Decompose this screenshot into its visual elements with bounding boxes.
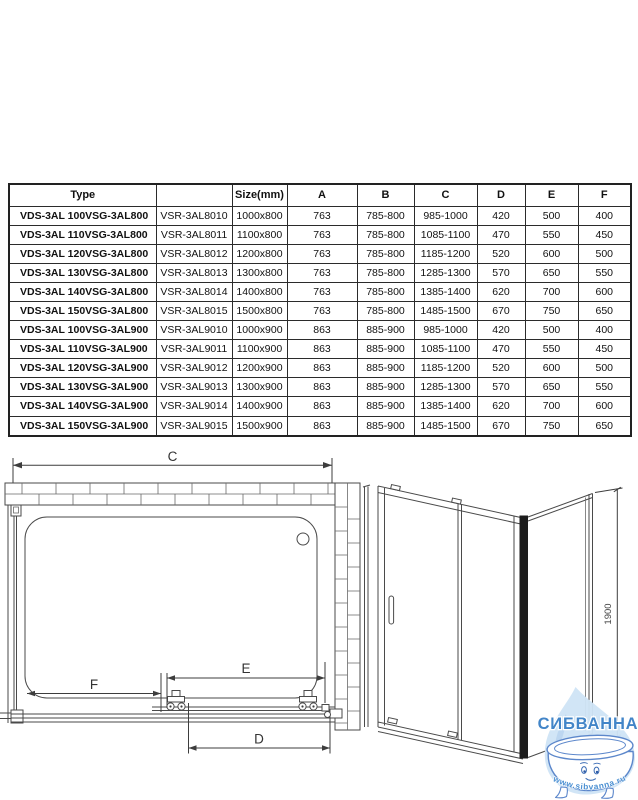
model-vsr: VSR-3AL8012: [156, 245, 232, 264]
watermark-brand-text: СИБВАННА: [538, 715, 638, 733]
size-value: 1000x900: [232, 321, 287, 340]
model-vsr: VSR-3AL9015: [156, 416, 232, 436]
dim-b-value: 785-800: [357, 226, 414, 245]
dim-f-value: 450: [578, 340, 631, 359]
dim-c-value: 1185-1200: [414, 359, 477, 378]
dim-f-value: 650: [578, 302, 631, 321]
dim-a-value: 863: [287, 397, 357, 416]
spec-sheet-page: { "table": { "headers": ["Type", "", "Si…: [0, 0, 638, 800]
dim-b-value: 885-900: [357, 321, 414, 340]
model-vsg: VSG-3AL900: [85, 382, 148, 393]
bottom-guide: [448, 731, 458, 737]
dim-f-value: 500: [578, 359, 631, 378]
model-vds: VDS-3AL 110: [20, 230, 85, 241]
drain-circle: [297, 533, 309, 545]
dim-c-value: 1285-1300: [414, 378, 477, 397]
model-vsg: VSG-3AL800: [85, 268, 148, 279]
dim-d-value: 670: [477, 302, 525, 321]
dim-f-value: 550: [578, 378, 631, 397]
dim-b-value: 785-800: [357, 264, 414, 283]
dim-e-value: 700: [525, 283, 578, 302]
top-roller-bracket: [452, 498, 462, 504]
size-value: 1300x900: [232, 378, 287, 397]
dim-f-value: 450: [578, 226, 631, 245]
door-handle: [389, 596, 394, 624]
dim-e-value: 750: [525, 302, 578, 321]
dim-a-value: 763: [287, 226, 357, 245]
col-header-size: Size(mm): [232, 184, 287, 207]
model-vsr: VSR-3AL8011: [156, 226, 232, 245]
dim-e-value: 500: [525, 207, 578, 226]
dim-d-value: 470: [477, 340, 525, 359]
model-vsr: VSR-3AL9010: [156, 321, 232, 340]
model-vsg: VSG-3AL900: [85, 325, 148, 336]
size-value: 1200x800: [232, 245, 287, 264]
dim-c-value: 985-1000: [414, 321, 477, 340]
model-vsg: VSG-3AL900: [85, 344, 148, 355]
dim-b-value: 785-800: [357, 302, 414, 321]
table-row: VDS-3AL 130VSG-3AL800 VSR-3AL8013 1300x8…: [9, 264, 631, 283]
dim-c-value: 1485-1500: [414, 416, 477, 436]
col-header-type: Type: [9, 184, 156, 207]
model-vds: VDS-3AL 150: [20, 306, 85, 317]
side-glass-panel-plan: [8, 505, 23, 723]
dim-f-value: 650: [578, 416, 631, 436]
dim-f-value: 550: [578, 264, 631, 283]
col-header-d: D: [477, 184, 525, 207]
col-header-e: E: [525, 184, 578, 207]
model-vds: VDS-3AL 150: [20, 421, 85, 432]
dim-e-value: 650: [525, 378, 578, 397]
model-vsg: VSG-3AL900: [85, 363, 148, 374]
model-vsg: VSG-3AL900: [85, 421, 148, 432]
size-value: 1500x800: [232, 302, 287, 321]
dim-f-value: 400: [578, 207, 631, 226]
dim-e-value: 600: [525, 359, 578, 378]
model-vsr: VSR-3AL9012: [156, 359, 232, 378]
table-header-row: Type Size(mm) A B C D E F: [9, 184, 631, 207]
dim-b-value: 885-900: [357, 397, 414, 416]
dim-e-value: 700: [525, 397, 578, 416]
dim-b-value: 885-900: [357, 416, 414, 436]
wall-profile-left: [363, 485, 370, 727]
dim-e-value: 500: [525, 321, 578, 340]
dim-e-value: 600: [525, 245, 578, 264]
dim-e-value: 550: [525, 340, 578, 359]
dim-e-value: 550: [525, 226, 578, 245]
col-header-f: F: [578, 184, 631, 207]
dim-c-value: 1485-1500: [414, 302, 477, 321]
col-header-code: [156, 184, 232, 207]
model-vsg: VSG-3AL800: [85, 249, 148, 260]
size-value: 1100x900: [232, 340, 287, 359]
brick-wall-top: [5, 483, 335, 505]
model-vsr: VSR-3AL8014: [156, 283, 232, 302]
size-value: 1000x800: [232, 207, 287, 226]
dim-b-value: 785-800: [357, 207, 414, 226]
dim-d-value: 420: [477, 207, 525, 226]
shower-tray: [25, 517, 317, 698]
model-vsr: VSR-3AL8013: [156, 264, 232, 283]
size-value: 1400x800: [232, 283, 287, 302]
dim-d-value: 570: [477, 264, 525, 283]
model-vsr: VSR-3AL9014: [156, 397, 232, 416]
dim-f-value: 500: [578, 245, 631, 264]
dim-c-value: 1385-1400: [414, 283, 477, 302]
model-vsr: VSR-3AL9013: [156, 378, 232, 397]
table-row: VDS-3AL 110VSG-3AL800 VSR-3AL8011 1100x8…: [9, 226, 631, 245]
dim-d-value: 620: [477, 397, 525, 416]
dim-c-value: 1085-1100: [414, 226, 477, 245]
dimension-label-f: F: [90, 677, 98, 692]
dim-c-value: 1385-1400: [414, 397, 477, 416]
dim-d-value: 620: [477, 283, 525, 302]
model-vsr: VSR-3AL8015: [156, 302, 232, 321]
bottom-guide: [388, 718, 398, 724]
plan-view-drawing: C: [0, 448, 368, 780]
table-row: VDS-3AL 120VSG-3AL800 VSR-3AL8012 1200x8…: [9, 245, 631, 264]
dim-a-value: 763: [287, 207, 357, 226]
model-vds: VDS-3AL 130: [20, 268, 85, 279]
dim-c-value: 1185-1200: [414, 245, 477, 264]
dim-d-value: 520: [477, 359, 525, 378]
model-vsg: VSG-3AL800: [85, 287, 148, 298]
dim-a-value: 763: [287, 264, 357, 283]
dim-e-value: 650: [525, 264, 578, 283]
model-vsg: VSG-3AL800: [85, 306, 148, 317]
model-vsg: VSG-3AL900: [85, 401, 148, 412]
col-header-a: A: [287, 184, 357, 207]
model-vsg: VSG-3AL800: [85, 211, 148, 222]
dim-a-value: 863: [287, 340, 357, 359]
dim-d-value: 470: [477, 226, 525, 245]
model-vsg: VSG-3AL800: [85, 230, 148, 241]
dim-f-value: 400: [578, 321, 631, 340]
watermark-logo: СИБВАННА www.sibvanna.ru: [486, 652, 638, 800]
size-value: 1500x900: [232, 416, 287, 436]
dim-d-value: 520: [477, 245, 525, 264]
dim-b-value: 885-900: [357, 340, 414, 359]
table-row: VDS-3AL 150VSG-3AL900 VSR-3AL9015 1500x9…: [9, 416, 631, 436]
dim-f-value: 600: [578, 397, 631, 416]
model-vsr: VSR-3AL9011: [156, 340, 232, 359]
table-row: VDS-3AL 100VSG-3AL800 VSR-3AL8010 1000x8…: [9, 207, 631, 226]
spec-table: Type Size(mm) A B C D E F VDS-3AL 100VSG…: [8, 183, 632, 437]
dim-a-value: 763: [287, 245, 357, 264]
dim-d-value: 420: [477, 321, 525, 340]
model-vds: VDS-3AL 130: [20, 382, 85, 393]
model-vds: VDS-3AL 100: [20, 325, 85, 336]
dim-a-value: 863: [287, 321, 357, 340]
dim-c-value: 1285-1300: [414, 264, 477, 283]
dim-a-value: 863: [287, 359, 357, 378]
dim-b-value: 885-900: [357, 378, 414, 397]
dimension-f: F: [27, 673, 161, 712]
dim-c-value: 985-1000: [414, 207, 477, 226]
dimension-label-e: E: [241, 661, 250, 676]
dimension-label-height: 1900: [603, 603, 614, 624]
model-vsr: VSR-3AL8010: [156, 207, 232, 226]
top-roller-bracket: [391, 485, 401, 491]
dim-f-value: 600: [578, 283, 631, 302]
table-row: VDS-3AL 130VSG-3AL900 VSR-3AL9013 1300x9…: [9, 378, 631, 397]
table-row: VDS-3AL 140VSG-3AL900 VSR-3AL9014 1400x9…: [9, 397, 631, 416]
dim-a-value: 863: [287, 378, 357, 397]
dim-c-value: 1085-1100: [414, 340, 477, 359]
dim-d-value: 570: [477, 378, 525, 397]
model-vds: VDS-3AL 140: [20, 401, 85, 412]
size-value: 1300x800: [232, 264, 287, 283]
dim-d-value: 670: [477, 416, 525, 436]
bathtub-leg: [556, 787, 568, 798]
dim-a-value: 863: [287, 416, 357, 436]
col-header-c: C: [414, 184, 477, 207]
model-vds: VDS-3AL 100: [20, 211, 85, 222]
size-value: 1400x900: [232, 397, 287, 416]
model-vds: VDS-3AL 110: [20, 344, 85, 355]
size-value: 1200x900: [232, 359, 287, 378]
model-vds: VDS-3AL 120: [20, 363, 85, 374]
dim-b-value: 885-900: [357, 359, 414, 378]
dim-a-value: 763: [287, 283, 357, 302]
dimension-label-c: C: [168, 449, 178, 464]
dim-e-value: 750: [525, 416, 578, 436]
table-row: VDS-3AL 140VSG-3AL800 VSR-3AL8014 1400x8…: [9, 283, 631, 302]
size-value: 1100x800: [232, 226, 287, 245]
table-row: VDS-3AL 110VSG-3AL900 VSR-3AL9011 1100x9…: [9, 340, 631, 359]
table-row: VDS-3AL 120VSG-3AL900 VSR-3AL9012 1200x9…: [9, 359, 631, 378]
model-vds: VDS-3AL 120: [20, 249, 85, 260]
dimension-label-d: D: [254, 732, 264, 747]
dim-a-value: 763: [287, 302, 357, 321]
table-row: VDS-3AL 100VSG-3AL900 VSR-3AL9010 1000x9…: [9, 321, 631, 340]
table-row: VDS-3AL 150VSG-3AL800 VSR-3AL8015 1500x8…: [9, 302, 631, 321]
col-header-b: B: [357, 184, 414, 207]
dim-b-value: 785-800: [357, 245, 414, 264]
dim-b-value: 785-800: [357, 283, 414, 302]
model-vds: VDS-3AL 140: [20, 287, 85, 298]
